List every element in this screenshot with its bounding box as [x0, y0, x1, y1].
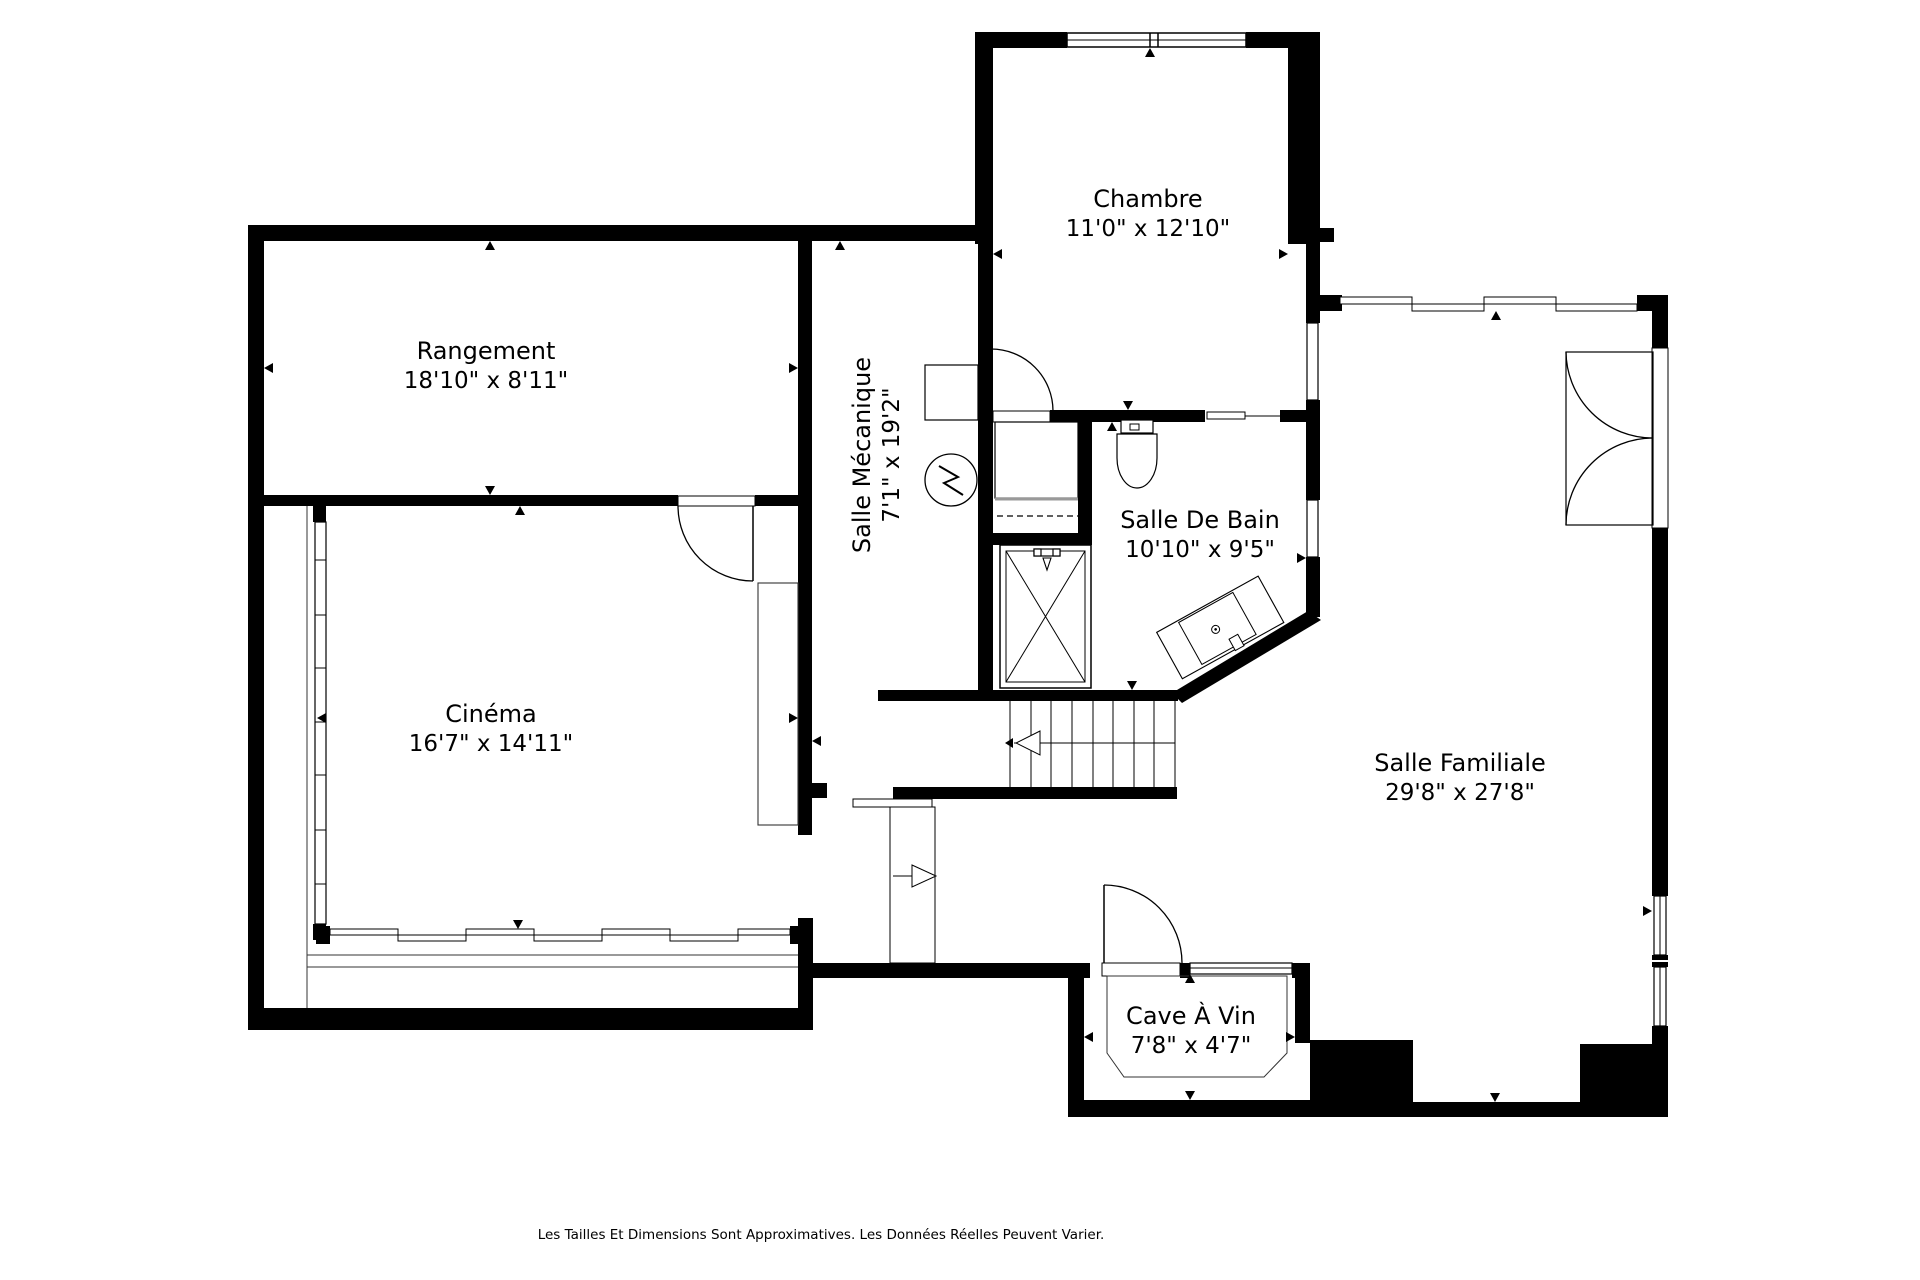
- room-name: Chambre: [1066, 184, 1230, 214]
- under-stair-passage: [853, 799, 936, 963]
- wall-famroom-left-c: [1306, 557, 1320, 617]
- floor-plan: Rangement 18'10" x 8'11" Cinéma 16'7" x …: [0, 0, 1920, 1280]
- room-label-salle-de-bain: Salle De Bain 10'10" x 9'5": [1120, 505, 1280, 565]
- cinema-bottom-window-band: [316, 926, 800, 944]
- room-dimensions: 18'10" x 8'11": [404, 366, 568, 396]
- chambre-top-window: [1067, 33, 1246, 47]
- wall-rangement-cinema-a: [264, 495, 678, 506]
- wall-cinema-bottom: [248, 1008, 813, 1030]
- wall-right-mid: [1652, 528, 1668, 890]
- wall-stub-hall: [810, 783, 827, 798]
- room-name: Rangement: [404, 336, 568, 366]
- room-dimensions: 7'8" x 4'7": [1126, 1031, 1256, 1061]
- famroom-right-windows: [1654, 896, 1666, 1026]
- wall-top-rangement: [248, 225, 993, 241]
- wall-chambre-top-left: [975, 32, 1067, 48]
- famroom-top-window-band: [1340, 297, 1637, 311]
- wall-rangement-cinema-b: [755, 495, 810, 506]
- wall-stub-chambre: [1288, 228, 1334, 242]
- wall-bottom-recessed: [1413, 1102, 1580, 1117]
- wall-cave-left: [1068, 963, 1084, 1117]
- room-label-cave-a-vin: Cave À Vin 7'8" x 4'7": [1126, 1001, 1256, 1061]
- stair-direction-arrow: [1016, 731, 1040, 755]
- room-dimensions: 11'0" x 12'10": [1066, 214, 1230, 244]
- shower-stall: [1000, 545, 1091, 688]
- furnace-unit: [925, 365, 978, 420]
- room-label-salle-mecanique: Salle Mécanique 7'1" x 19'2": [847, 357, 907, 553]
- wall-right-upper: [1652, 295, 1668, 348]
- room-name: Salle Familiale: [1374, 748, 1546, 778]
- shower-faucet-icon: [1034, 549, 1060, 570]
- window-cap-top: [1652, 890, 1668, 896]
- wall-chambre-left: [975, 32, 993, 244]
- room-label-salle-familiale: Salle Familiale 29'8" x 27'8": [1374, 748, 1546, 808]
- wall-cinema-right-lower: [798, 918, 813, 1030]
- door-chambre: [991, 349, 1053, 422]
- room-name: Cinéma: [409, 699, 573, 729]
- electrical-panel-icon: [925, 454, 977, 506]
- wall-hall-bottom: [810, 963, 1090, 978]
- room-name: Salle Mécanique: [847, 357, 877, 553]
- window-bar-b: [1652, 962, 1668, 967]
- wall-cave-top-corner: [1292, 963, 1310, 978]
- staircase: [853, 701, 1175, 963]
- wall-bathroom-top-b: [1280, 410, 1320, 422]
- door-cave-a-vin: [1102, 885, 1182, 976]
- wall-stairs-top: [878, 690, 1178, 701]
- room-label-rangement: Rangement 18'10" x 8'11": [404, 336, 568, 396]
- room-name: Cave À Vin: [1126, 1001, 1256, 1031]
- room-dimensions: 10'10" x 9'5": [1120, 535, 1280, 565]
- wall-laundry-right: [1078, 420, 1092, 533]
- wall-exterior-left: [248, 225, 264, 1030]
- floor-plan-canvas: [0, 0, 1920, 1280]
- room-dimensions: 7'1" x 19'2": [877, 357, 907, 553]
- cinema-cabinet: [758, 583, 798, 825]
- double-door-famroom: [1566, 348, 1668, 528]
- wall-mass-bottom-left: [1310, 1040, 1413, 1117]
- cave-window: [1190, 963, 1292, 974]
- wall-right-lower: [1652, 1032, 1668, 1044]
- wall-chambre-right: [1288, 32, 1320, 244]
- wall-cave-bottom: [1068, 1100, 1310, 1117]
- room-name: Salle De Bain: [1120, 505, 1280, 535]
- door-rangement-cinema: [678, 496, 755, 581]
- wall-laundry-bottom: [993, 533, 1092, 545]
- window-cap-bottom: [1652, 1026, 1668, 1032]
- laundry-counter: [995, 422, 1078, 516]
- wall-mass-bottom-right: [1580, 1044, 1668, 1117]
- room-label-chambre: Chambre 11'0" x 12'10": [1066, 184, 1230, 244]
- window-bar-a: [1652, 955, 1668, 960]
- pocket-door-bathroom: [1207, 412, 1280, 419]
- toilet-icon: [1117, 420, 1157, 488]
- dimension-arrows: [264, 48, 1652, 1102]
- wall-famroom-left-a: [1306, 242, 1320, 323]
- wall-stairs-bottom: [893, 787, 1177, 799]
- cinema-left-window-strip: [313, 506, 326, 940]
- room-label-cinema: Cinéma 16'7" x 14'11": [409, 699, 573, 759]
- room-dimensions: 16'7" x 14'11": [409, 729, 573, 759]
- wall-cinema-right: [798, 241, 812, 835]
- disclaimer-text: Les Tailles Et Dimensions Sont Approxima…: [538, 1227, 1105, 1243]
- room-dimensions: 29'8" x 27'8": [1374, 778, 1546, 808]
- walls: [248, 32, 1668, 1117]
- wall-mech-right: [978, 241, 993, 701]
- wall-famroom-top-left: [1320, 295, 1342, 311]
